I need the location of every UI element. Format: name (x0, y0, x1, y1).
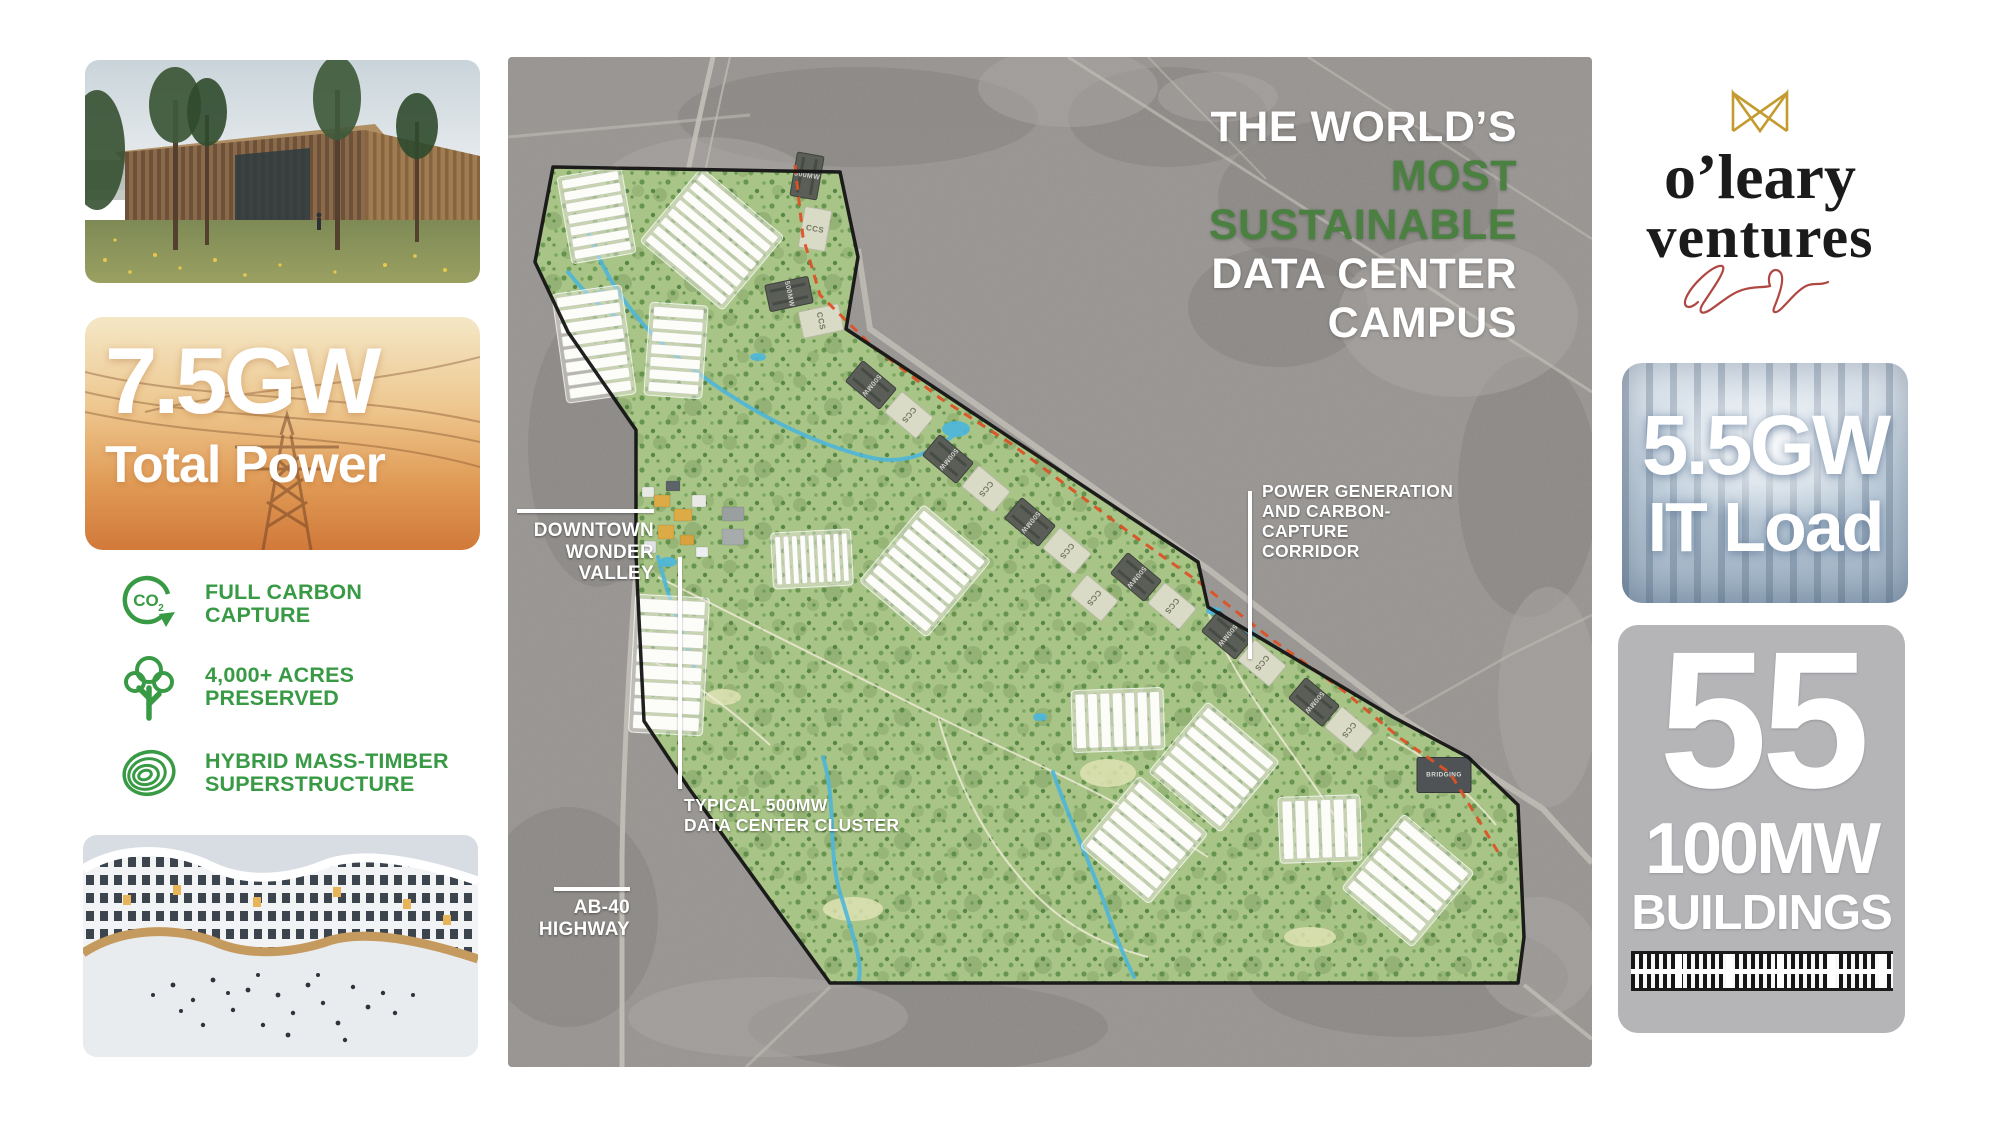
campus-map: 500MWCCS500MWCCS500MWCCS500MWCCS500MWCCS… (508, 57, 1592, 1067)
label-line: DATA CENTER CLUSTER (684, 815, 924, 835)
callout-line (554, 887, 630, 891)
map-title: THE WORLD’S MOST SUSTAINABLE DATA CENTER… (1209, 103, 1517, 348)
total-power-value: 7.5GW (105, 327, 385, 435)
feature-line: HYBRID MASS-TIMBER (205, 750, 449, 774)
label-line: AB-40 (528, 897, 630, 919)
title-line: DATA CENTER (1209, 250, 1517, 299)
title-line: THE WORLD’S (1209, 103, 1517, 152)
it-load-value: 5.5GW (1622, 401, 1908, 489)
callout-line (1248, 491, 1252, 659)
feature-line: CAPTURE (205, 604, 362, 628)
feature-carbon-capture: CO 2 FULL CARBON CAPTURE (118, 570, 362, 638)
feature-mass-timber: HYBRID MASS-TIMBER SUPERSTRUCTURE (118, 742, 449, 804)
svg-text:2: 2 (158, 603, 164, 614)
downtown-wonder-valley-label: DOWNTOWN WONDER VALLEY (517, 509, 654, 585)
signature-icon (1670, 250, 1850, 322)
callout-line (678, 557, 682, 789)
oleary-ventures-logo: o’leary ventures (1600, 85, 1920, 327)
timber-rings-icon (118, 742, 180, 804)
timber-datacenter-photo (85, 60, 480, 283)
label-line: VALLEY (517, 563, 654, 585)
person-figure (317, 213, 322, 230)
label-line: POWER GENERATION (1262, 481, 1472, 501)
callout-line (517, 509, 654, 513)
title-line: MOST (1209, 152, 1517, 201)
label-line: HIGHWAY (528, 919, 630, 941)
crown-icon (1729, 85, 1791, 133)
title-line: SUSTAINABLE (1209, 201, 1517, 250)
building-row-diagram (1631, 951, 1893, 991)
winter-plaza-illustration (83, 835, 478, 1057)
it-load-label: IT Load (1622, 489, 1908, 565)
highway-label: AB-40 HIGHWAY (528, 887, 630, 940)
buildings-card: 55 100MW BUILDINGS (1618, 625, 1905, 1033)
buildings-capacity: 100MW (1618, 813, 1905, 885)
winter-plaza-photo (83, 835, 478, 1057)
title-line: CAMPUS (1209, 299, 1517, 348)
it-load-card: 5.5GW IT Load (1622, 363, 1908, 603)
svg-text:BRIDGING: BRIDGING (1426, 772, 1462, 779)
feature-line: FULL CARBON (205, 581, 362, 605)
infographic-canvas: 7.5GW Total Power CO 2 FULL CARBON CAPTU… (0, 0, 1996, 1124)
timber-datacenter-illustration (85, 60, 480, 283)
feature-line: 4,000+ ACRES (205, 664, 354, 688)
co2-capture-icon: CO 2 (118, 570, 180, 638)
label-line: CORRIDOR (1262, 541, 1472, 561)
label-line: WONDER (517, 542, 654, 564)
svg-text:CO: CO (133, 591, 159, 610)
feature-line: SUPERSTRUCTURE (205, 773, 449, 797)
label-line: DOWNTOWN (517, 520, 654, 542)
feature-line: PRESERVED (205, 687, 354, 711)
logo-name-line1: o’leary (1600, 146, 1920, 208)
buildings-count: 55 (1618, 629, 1905, 811)
tree-icon (118, 652, 180, 722)
total-power-label: Total Power (105, 437, 385, 493)
total-power-card: 7.5GW Total Power (85, 317, 480, 550)
label-line: TYPICAL 500MW (684, 795, 924, 815)
label-line: AND CARBON-CAPTURE (1262, 501, 1472, 541)
feature-acres-preserved: 4,000+ ACRES PRESERVED (118, 652, 354, 722)
buildings-label: BUILDINGS (1618, 887, 1905, 939)
